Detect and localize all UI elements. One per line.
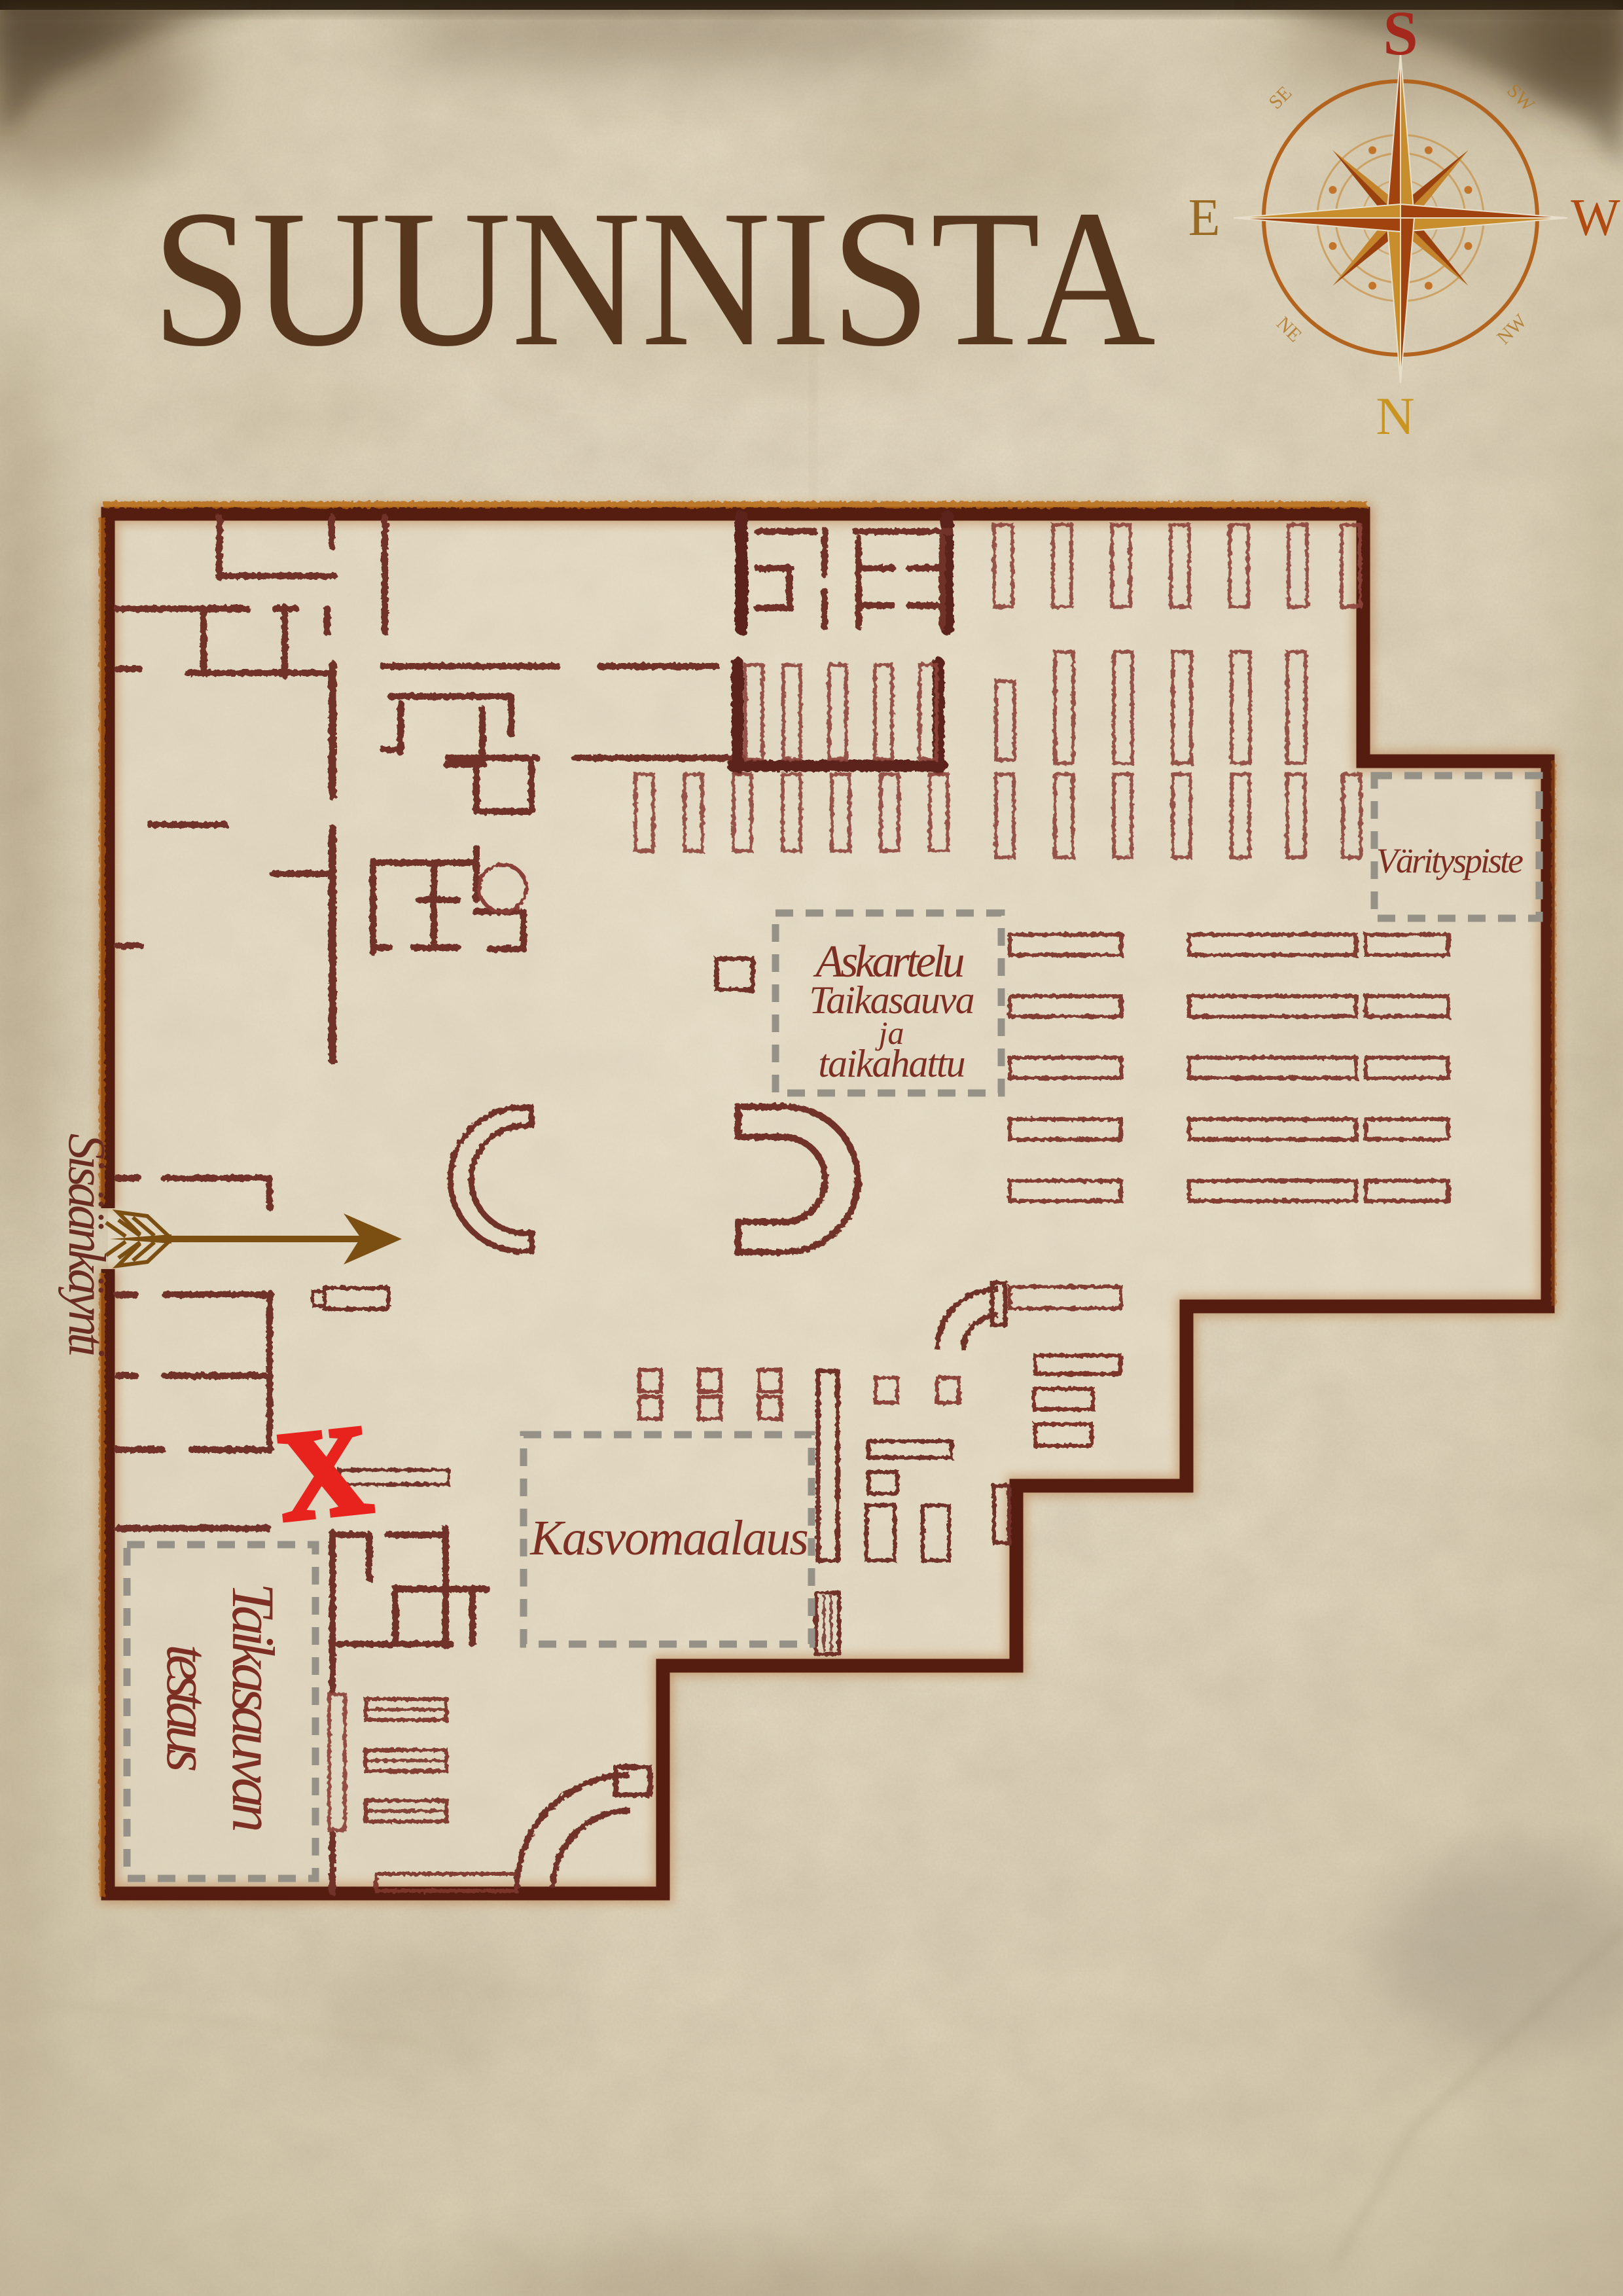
svg-text:Kasvomaalaus: Kasvomaalaus [529,1511,808,1566]
svg-text:N: N [1376,386,1414,446]
svg-text:Värityspiste: Värityspiste [1376,841,1523,880]
svg-text:Sisäänkäynti: Sisäänkäynti [58,1134,115,1357]
svg-text:X: X [271,1398,378,1549]
svg-text:S: S [1383,0,1418,68]
svg-text:taikahattu: taikahattu [818,1042,964,1085]
svg-text:W: W [1571,189,1620,247]
svg-text:testaus: testaus [154,1644,221,1771]
svg-text:E: E [1188,189,1221,247]
svg-text:SUUNNISTA: SUUNNISTA [152,170,1156,387]
svg-text:Taikasauvan: Taikasauvan [220,1583,287,1831]
